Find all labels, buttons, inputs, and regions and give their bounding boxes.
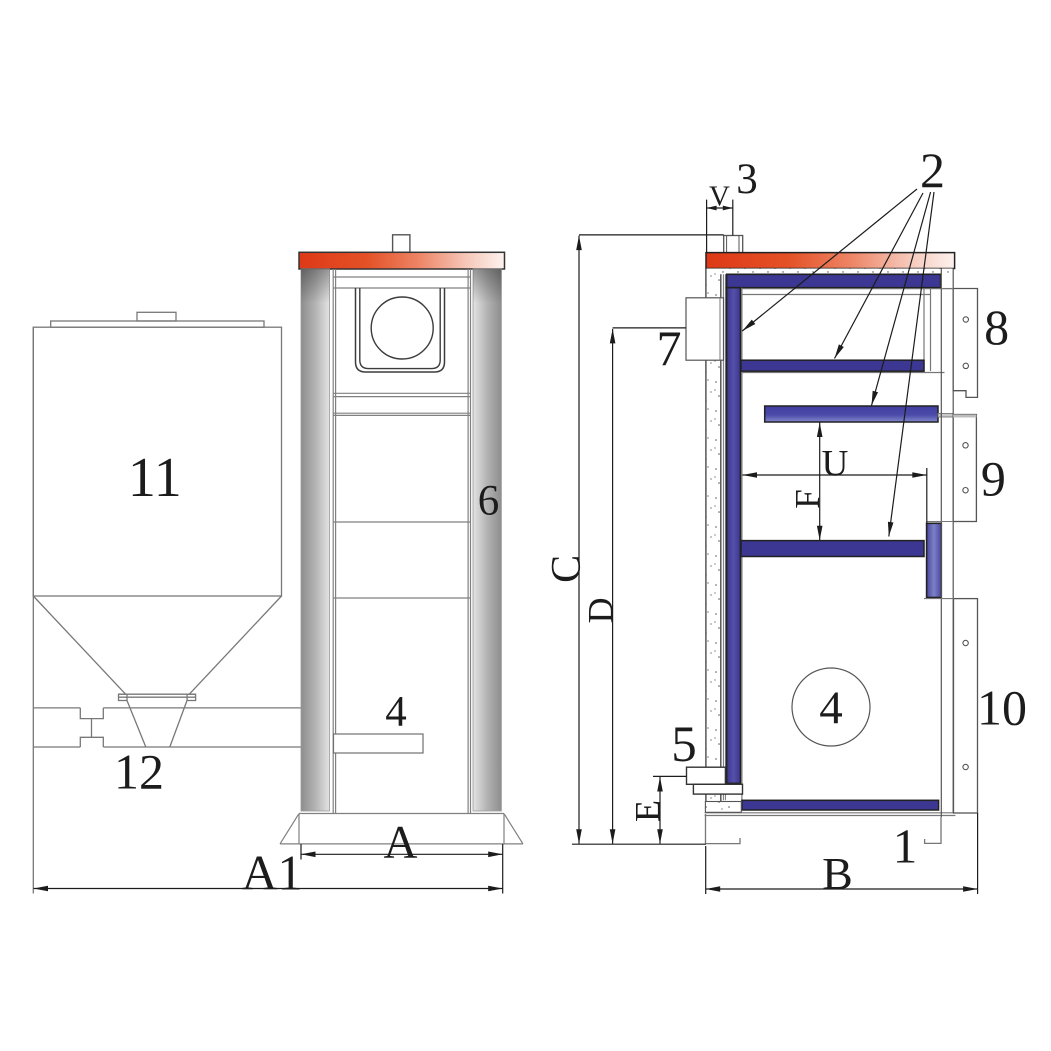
svg-text:12: 12	[114, 744, 164, 800]
svg-text:B: B	[822, 848, 853, 899]
svg-text:9: 9	[981, 451, 1006, 507]
svg-text:4: 4	[385, 689, 407, 736]
svg-text:A: A	[384, 817, 418, 869]
svg-text:A1: A1	[241, 845, 302, 901]
svg-text:7: 7	[657, 320, 682, 376]
svg-text:11: 11	[128, 447, 182, 509]
svg-text:5: 5	[671, 717, 697, 773]
svg-text:D: D	[581, 597, 621, 623]
svg-text:2: 2	[920, 142, 945, 198]
svg-text:4: 4	[819, 682, 843, 734]
svg-text:1: 1	[893, 819, 918, 874]
svg-text:6: 6	[478, 478, 500, 525]
svg-text:3: 3	[736, 156, 758, 203]
svg-text:V: V	[709, 181, 730, 213]
svg-text:10: 10	[977, 680, 1027, 736]
svg-text:F: F	[788, 489, 827, 508]
svg-text:U: U	[822, 444, 849, 485]
svg-text:E: E	[627, 800, 667, 822]
svg-text:8: 8	[984, 299, 1009, 355]
svg-text:C: C	[544, 555, 590, 583]
